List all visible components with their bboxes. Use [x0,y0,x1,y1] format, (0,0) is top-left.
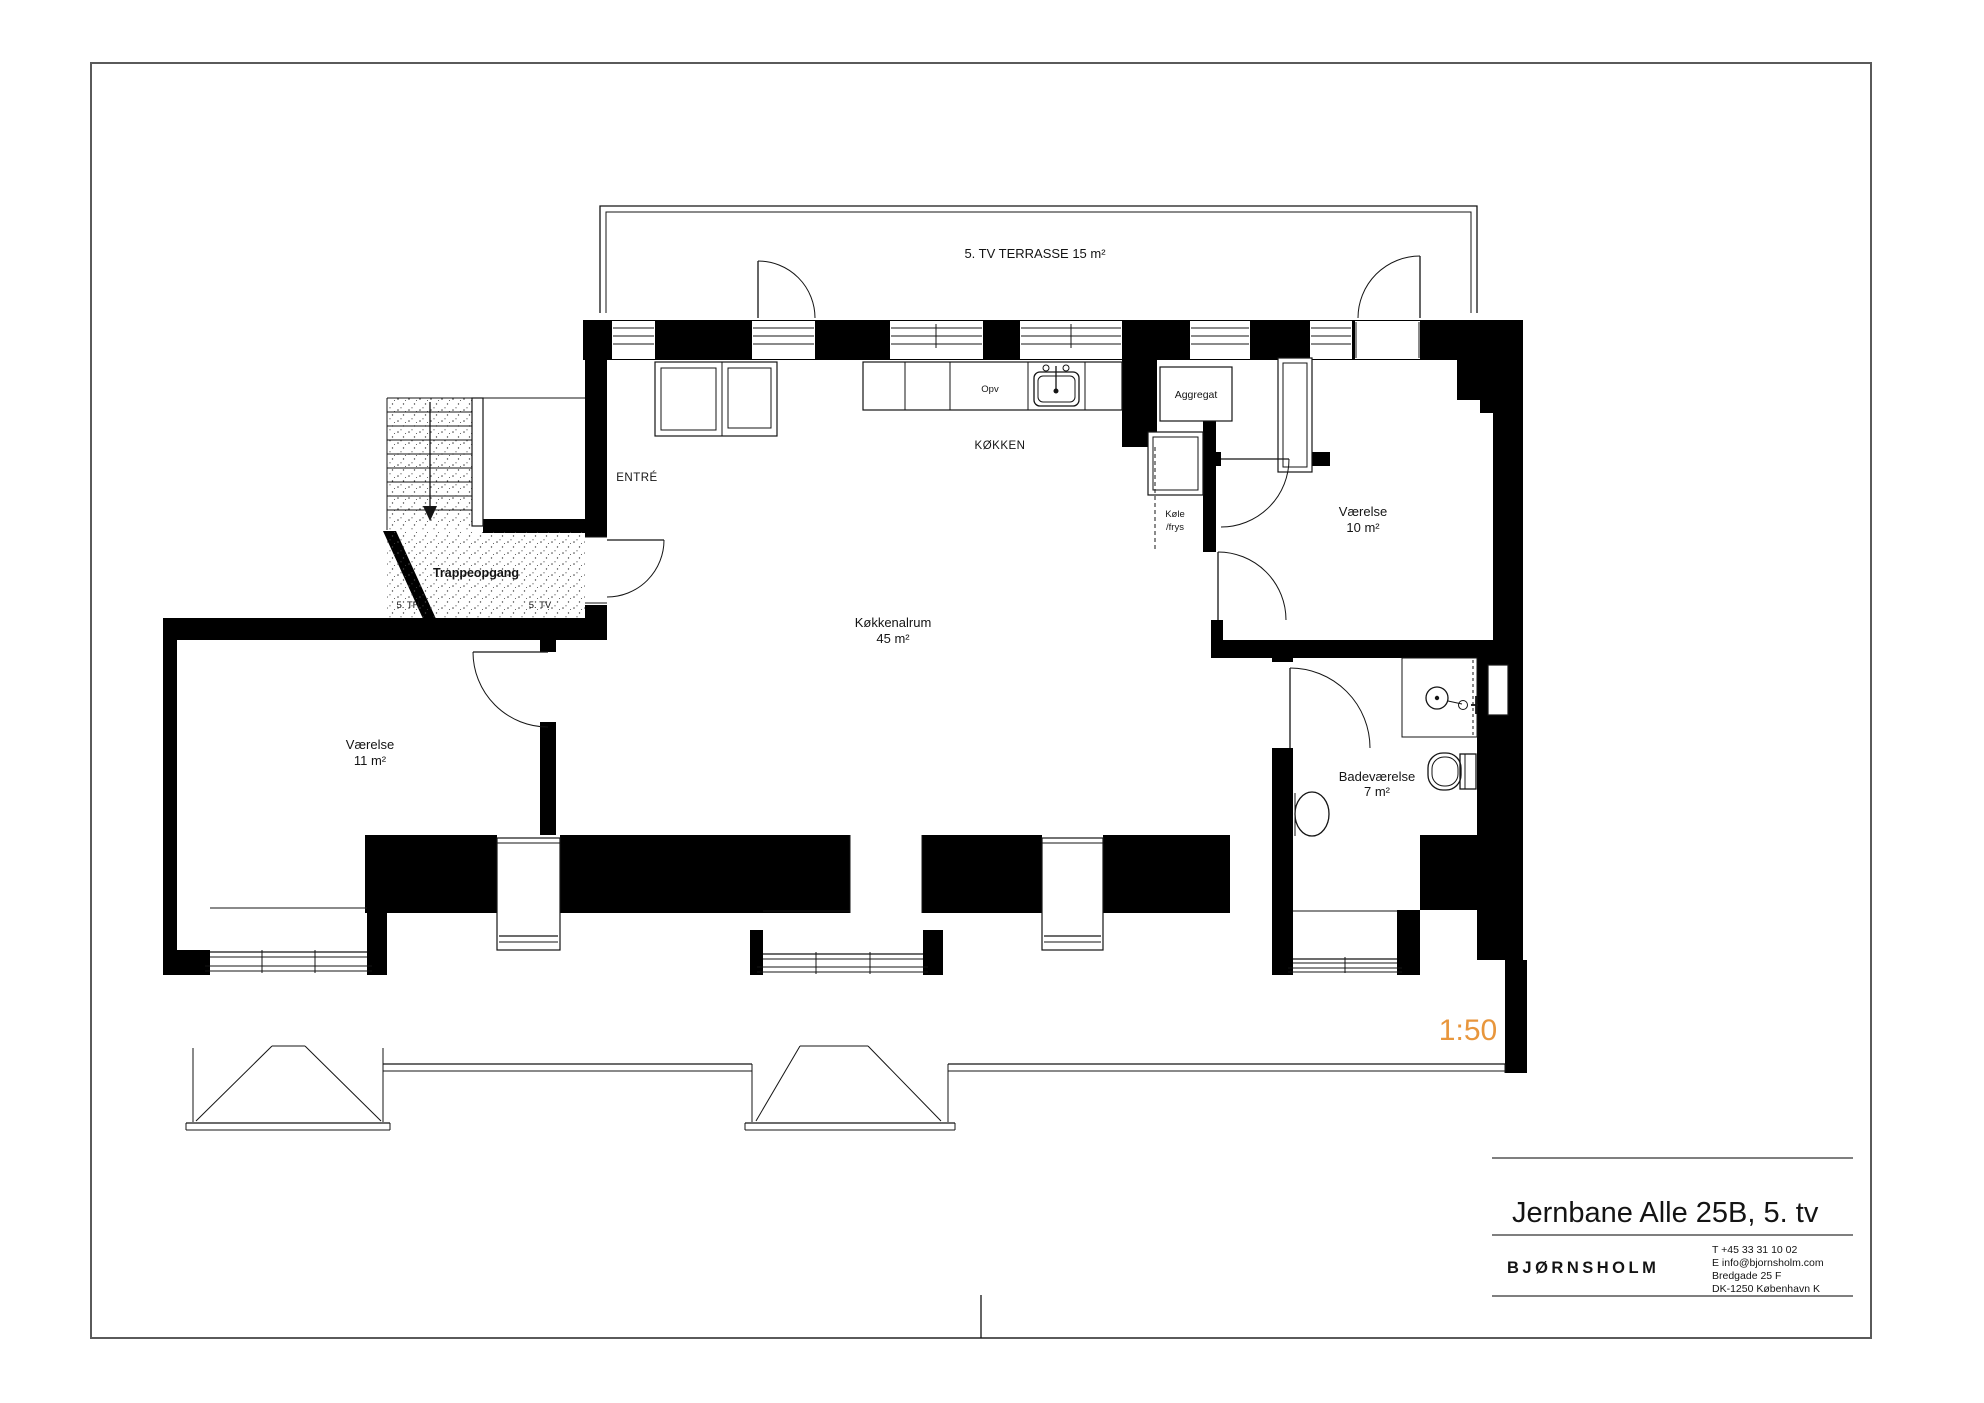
scale-label: 1:50 [1439,1014,1497,1047]
tall-cabinet [1278,358,1312,472]
window-niche [497,838,560,950]
fridge-freezer-unit [1148,432,1203,552]
kitchen-living-name: Køkkenalrum [855,615,932,630]
sheet-title: Jernbane Alle 25B, 5. tv [1512,1197,1819,1229]
bathroom-sink-icon [1295,792,1329,836]
aggregat-label: Aggregat [1175,389,1218,401]
entre-label: ENTRÉ [616,471,657,484]
kitchen-living-area: 45 m² [876,631,910,646]
terrace-door-right [1358,256,1420,318]
bathroom-name: Badeværelse [1339,769,1416,784]
bathroom [1290,658,1508,836]
bedroom-left-area: 11 m² [354,753,387,768]
corridor-door [1218,552,1286,620]
shower-icon [1402,658,1478,737]
floor-plan-page: 5. TV TERRASSE 15 m² ENTRÉ KØKKEN Opv Ag… [0,0,1984,1403]
dormer-roof-center [745,1046,955,1130]
bedroom-right-name: Værelse [1339,504,1387,519]
contact-address1: Bredgade 25 F [1712,1270,1781,1282]
bathroom-door [1290,668,1370,748]
stairwell [387,398,585,618]
stair-handrail [472,398,483,526]
dishwasher-label: Opv [981,384,999,395]
fridge-label-line2: /frys [1166,522,1184,533]
roof-outline [186,1046,1505,1130]
terrace-door-opening [1355,321,1420,359]
contact-phone: T +45 33 31 10 02 [1712,1244,1797,1256]
neighbor-door-label: 5. TH [396,600,419,611]
toilet-icon [1428,753,1476,790]
dormer-roof-left [186,1046,390,1130]
title-block: Jernbane Alle 25B, 5. tv BJØRNSHOLM T +4… [1492,1158,1853,1296]
bedroom-right-area: 10 m² [1346,520,1380,535]
kitchen-label: KØKKEN [975,440,1026,452]
bedroom-left-door [473,652,548,727]
wall-niche [1488,665,1508,715]
stairwell-label: Trappeopgang [433,566,519,580]
entre-wardrobe [655,362,777,436]
bathroom-area: 7 m² [1364,784,1391,799]
contact-email: E info@bjornsholm.com [1712,1257,1824,1269]
walls [163,320,1527,1073]
company-logo: BJØRNSHOLM [1507,1259,1659,1277]
floor-plan-drawing: 5. TV TERRASSE 15 m² ENTRÉ KØKKEN Opv Ag… [0,0,1984,1403]
fridge-label-line1: Køle [1165,509,1185,520]
company-contact: T +45 33 31 10 02 E info@bjornsholm.com … [1712,1244,1824,1295]
contact-address2: DK-1250 København K [1712,1283,1820,1295]
terrace-door-left [758,261,815,318]
bedroom-left-name: Værelse [346,737,394,752]
window-niche [1042,838,1103,950]
entry-door [585,537,664,603]
apartment-door-label: 5. TV [529,600,552,611]
terrace-label: 5. TV TERRASSE 15 m² [964,246,1106,261]
